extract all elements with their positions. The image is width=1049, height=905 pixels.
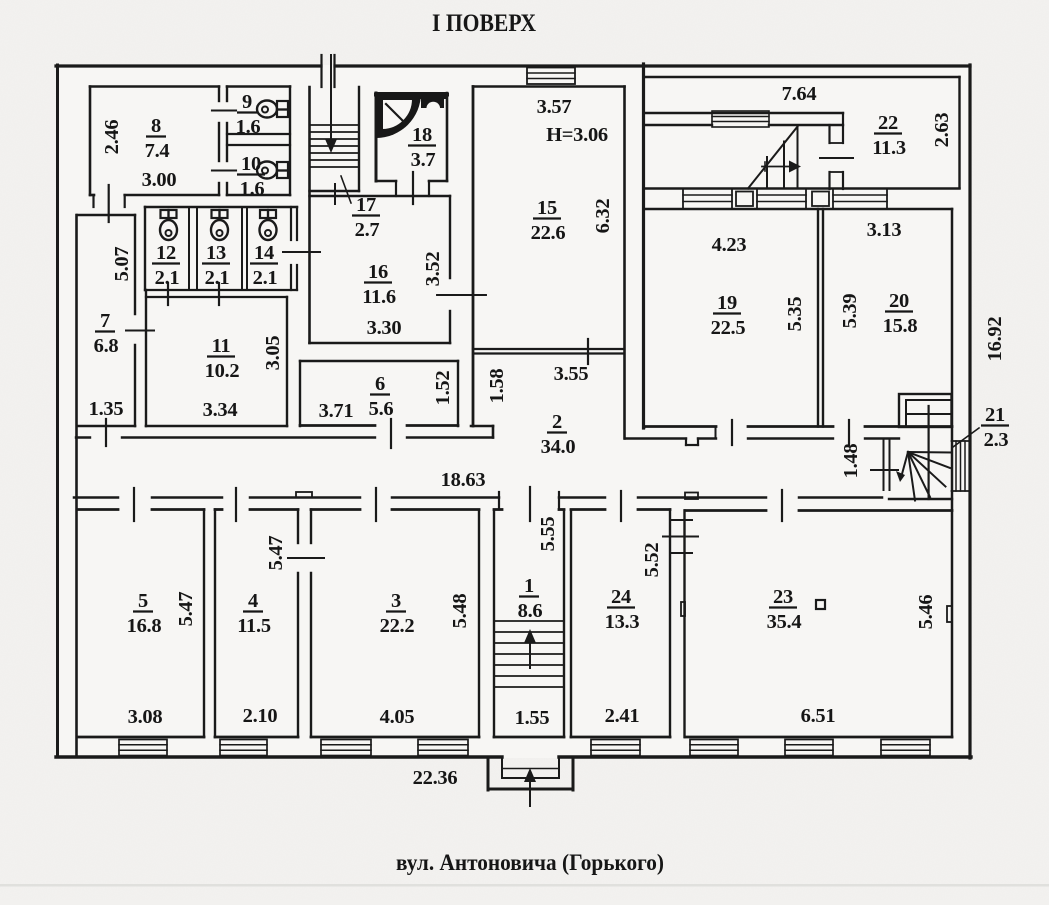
svg-text:11.6: 11.6 [362, 286, 396, 308]
svg-text:2.1: 2.1 [155, 267, 180, 289]
svg-text:2.1: 2.1 [205, 267, 230, 289]
svg-text:3.34: 3.34 [203, 399, 238, 421]
svg-text:15: 15 [537, 197, 557, 219]
svg-text:6.32: 6.32 [592, 199, 614, 234]
svg-text:13.3: 13.3 [605, 611, 640, 633]
svg-text:12: 12 [156, 242, 176, 264]
svg-text:2: 2 [552, 411, 562, 433]
svg-text:1.58: 1.58 [486, 369, 508, 404]
svg-text:16: 16 [368, 261, 388, 283]
svg-text:8: 8 [151, 115, 161, 137]
svg-text:3.55: 3.55 [554, 363, 589, 385]
svg-text:22: 22 [878, 112, 898, 134]
svg-text:13: 13 [206, 242, 226, 264]
svg-text:І ПОВЕРХ: І ПОВЕРХ [432, 10, 536, 37]
svg-text:9: 9 [242, 91, 252, 113]
svg-text:10.2: 10.2 [205, 360, 240, 382]
svg-text:23: 23 [773, 586, 793, 608]
svg-text:18.63: 18.63 [441, 469, 486, 491]
svg-text:4.05: 4.05 [380, 706, 415, 728]
svg-text:14: 14 [254, 242, 274, 264]
svg-text:7: 7 [100, 310, 110, 332]
svg-text:16.8: 16.8 [127, 615, 162, 637]
svg-text:5.39: 5.39 [839, 294, 861, 329]
svg-text:5.6: 5.6 [369, 398, 394, 420]
svg-text:34.0: 34.0 [541, 436, 576, 458]
svg-text:6: 6 [375, 373, 385, 395]
svg-text:1.55: 1.55 [515, 707, 550, 729]
svg-text:2.7: 2.7 [355, 219, 380, 241]
svg-text:3.00: 3.00 [142, 169, 177, 191]
svg-text:18: 18 [412, 124, 432, 146]
svg-text:4: 4 [248, 590, 258, 612]
svg-text:24: 24 [611, 586, 631, 608]
svg-text:5.35: 5.35 [784, 297, 806, 332]
svg-text:3.7: 3.7 [411, 149, 436, 171]
svg-text:7.4: 7.4 [145, 140, 170, 162]
svg-text:10: 10 [241, 153, 261, 175]
svg-text:22.5: 22.5 [711, 317, 746, 339]
svg-text:22.2: 22.2 [380, 615, 415, 637]
svg-text:21: 21 [985, 404, 1005, 426]
svg-text:3.30: 3.30 [367, 317, 402, 339]
svg-text:1.6: 1.6 [236, 116, 261, 138]
svg-text:5.46: 5.46 [915, 595, 937, 630]
svg-text:3.13: 3.13 [867, 219, 902, 241]
svg-text:3.52: 3.52 [422, 252, 444, 287]
svg-text:1.6: 1.6 [240, 178, 265, 200]
svg-text:1.35: 1.35 [89, 398, 124, 420]
svg-text:4.23: 4.23 [712, 234, 747, 256]
svg-text:3.08: 3.08 [128, 706, 163, 728]
svg-text:3.05: 3.05 [262, 336, 284, 371]
svg-text:6.8: 6.8 [94, 335, 119, 357]
svg-text:5.52: 5.52 [641, 543, 663, 578]
svg-text:2.63: 2.63 [931, 113, 953, 148]
svg-text:1.52: 1.52 [432, 371, 454, 406]
svg-text:7.64: 7.64 [782, 83, 817, 105]
svg-text:5: 5 [138, 590, 148, 612]
svg-text:H=3.06: H=3.06 [546, 124, 608, 146]
svg-text:2.41: 2.41 [605, 705, 640, 727]
svg-text:11.5: 11.5 [237, 615, 271, 637]
svg-text:3: 3 [391, 590, 401, 612]
svg-text:5.07: 5.07 [111, 247, 133, 282]
svg-text:5.47: 5.47 [175, 592, 197, 627]
svg-text:1: 1 [524, 575, 534, 597]
svg-text:5.48: 5.48 [449, 594, 471, 629]
svg-text:11: 11 [212, 335, 231, 357]
svg-text:2.3: 2.3 [984, 429, 1009, 451]
svg-text:5.47: 5.47 [265, 536, 287, 571]
svg-text:5.55: 5.55 [537, 517, 559, 552]
svg-text:1.48: 1.48 [840, 444, 862, 479]
svg-text:2.10: 2.10 [243, 705, 278, 727]
svg-text:11.3: 11.3 [872, 137, 906, 159]
svg-text:20: 20 [889, 290, 909, 312]
svg-text:8.6: 8.6 [518, 600, 543, 622]
svg-text:22.6: 22.6 [531, 222, 566, 244]
svg-text:17: 17 [356, 194, 376, 216]
svg-text:35.4: 35.4 [767, 611, 802, 633]
svg-text:15.8: 15.8 [883, 315, 918, 337]
svg-text:22.36: 22.36 [413, 767, 458, 789]
svg-text:2.46: 2.46 [101, 120, 123, 155]
svg-text:2.1: 2.1 [253, 267, 278, 289]
svg-text:вул. Антоновича (Горького): вул. Антоновича (Горького) [396, 850, 664, 875]
svg-text:3.71: 3.71 [319, 400, 354, 422]
svg-text:6.51: 6.51 [801, 705, 836, 727]
svg-text:3.57: 3.57 [537, 96, 572, 118]
svg-text:19: 19 [717, 292, 737, 314]
svg-text:16.92: 16.92 [984, 317, 1006, 362]
